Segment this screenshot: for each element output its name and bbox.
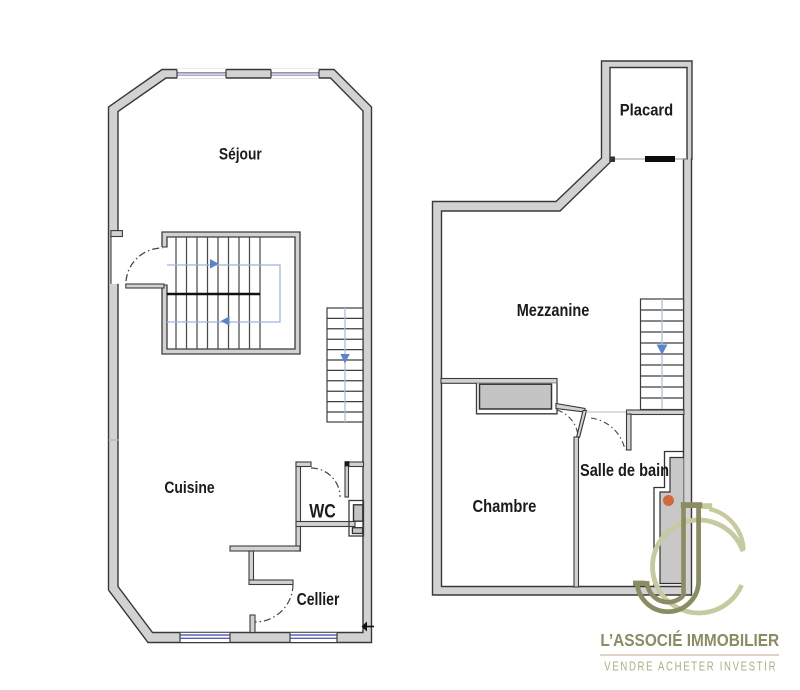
svg-text:Chambre: Chambre [472, 497, 536, 517]
svg-text:Cuisine: Cuisine [164, 479, 215, 498]
svg-text:VENDRE ACHETER INVESTIR: VENDRE ACHETER INVESTIR [604, 660, 777, 673]
svg-text:Séjour: Séjour [219, 145, 262, 164]
svg-text:Salle de bain: Salle de bain [580, 461, 669, 481]
svg-text:L’ASSOCIÉ IMMOBILIER: L’ASSOCIÉ IMMOBILIER [600, 630, 779, 650]
svg-text:Mezzanine: Mezzanine [517, 301, 590, 321]
svg-text:WC: WC [309, 500, 336, 522]
svg-text:Placard: Placard [620, 102, 673, 120]
svg-text:Cellier: Cellier [297, 589, 341, 609]
